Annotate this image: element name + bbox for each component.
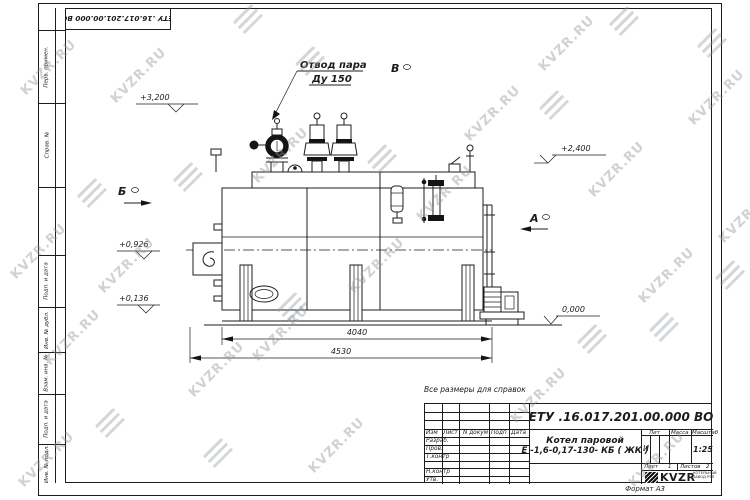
tb-v2 [459, 404, 460, 484]
tb-v7 [650, 435, 651, 463]
safety-valve [304, 113, 330, 172]
elevation-0926: +0,926 [117, 240, 160, 259]
safety-valve [331, 113, 357, 172]
tb-massa-label: Масса [671, 430, 689, 436]
tb-header-izm: Изм [426, 430, 438, 436]
svg-text:А: А [529, 212, 539, 225]
steam-outlet-label: Отвод пара Ду 150 [272, 60, 367, 120]
support-leg [462, 265, 474, 321]
tb-sheet-value: 1 [668, 464, 672, 470]
title-block: ЕТУ .16.017.201.00.000 ВО Котел паровой … [424, 403, 712, 483]
view-arrow-v: В [391, 62, 411, 75]
kvzr-logo-icon [645, 472, 658, 483]
tb-row-prov: Пров. [426, 446, 443, 452]
tb-h2 [425, 420, 529, 421]
tb-v11 [677, 463, 678, 470]
format-label: Формат А3 [600, 485, 690, 493]
tb-v4 [509, 404, 510, 484]
dim-4040: 4040 [347, 328, 367, 337]
tb-v3 [489, 404, 490, 484]
svg-text:+2,400: +2,400 [561, 144, 591, 153]
elevation-0136: +0,136 [117, 294, 160, 313]
tb-header-ndokum: N докум [463, 430, 488, 436]
tb-h1 [425, 412, 529, 413]
tb-company-cell: KVZR КОТЕЛЬНЫЙ ЗАВОД РЭП [641, 470, 713, 484]
kvzr-sub-line2: ЗАВОД РЭП [693, 476, 717, 480]
elevation-3200: +3,200 [136, 93, 198, 112]
kvzr-logo-stripes [645, 472, 658, 483]
tb-h9 [425, 476, 529, 477]
svg-text:+0,136: +0,136 [119, 294, 149, 303]
tb-header-list: Лист [443, 430, 458, 436]
downcomer-pipe [483, 205, 495, 288]
view-arrow-a: А [520, 212, 550, 232]
dimension-lines: 4040 4530 [190, 327, 492, 363]
burner [193, 149, 222, 301]
steam-outlet-valve [250, 119, 289, 173]
tb-sheets-value: 2 [706, 464, 710, 470]
drawing-sheet: Перв. примен. Справ. № Подп. и дата Инв.… [0, 0, 750, 500]
tb-row-nkontr: Н.контр [426, 469, 450, 475]
svg-text:0,000: 0,000 [562, 305, 585, 314]
reference-note: Все размеры для справок [424, 385, 526, 394]
tb-masshtab-label: Масштаб [692, 430, 718, 436]
tb-lit-label: Лит [649, 430, 660, 436]
dim-4530: 4530 [331, 347, 351, 356]
boiler-body [186, 113, 562, 325]
svg-text:+3,200: +3,200 [140, 93, 170, 102]
svg-text:Отвод пара: Отвод пара [300, 60, 367, 71]
tb-v8 [659, 435, 660, 463]
svg-text:Ду 150: Ду 150 [311, 74, 352, 85]
tb-row-utv: Утв. [426, 477, 438, 483]
kvzr-logo-text: KVZR [660, 471, 695, 484]
elevation-0000: 0,000 [544, 305, 600, 324]
tb-h7 [425, 461, 529, 462]
tb-sheets-label: Листов [680, 464, 701, 470]
tb-name-cell: Котел паровой Е -1,6-0,17-130- КБ ( ЖК ) [529, 429, 641, 463]
tb-scale-value: 1:25 [693, 445, 713, 454]
tb-lit-value: И [643, 444, 649, 453]
elevation-2400: +2,400 [534, 144, 606, 163]
tb-row-razrab: Разраб. [426, 438, 449, 444]
support-leg [350, 265, 362, 321]
tb-name-line1: Котел паровой [546, 436, 624, 446]
drum-right-fittings [449, 145, 474, 172]
drum-dome-fitting [288, 165, 302, 172]
tb-row-tkontr: Т.контр [426, 454, 449, 460]
tb-doc-number: ЕТУ .16.017.201.00.000 ВО [529, 404, 713, 429]
feed-pump [480, 287, 524, 325]
tb-header-data: Дата [511, 430, 526, 436]
svg-text:Б: Б [118, 185, 126, 198]
svg-text:В: В [391, 62, 399, 75]
tb-header-podp: Подп [491, 430, 507, 436]
tb-sheet-label: Лист [644, 464, 658, 470]
view-arrow-b: Б [118, 185, 152, 206]
svg-text:+0,926: +0,926 [119, 240, 149, 249]
tb-name-line2: Е -1,6-0,17-130- КБ ( ЖК ) [521, 446, 648, 456]
